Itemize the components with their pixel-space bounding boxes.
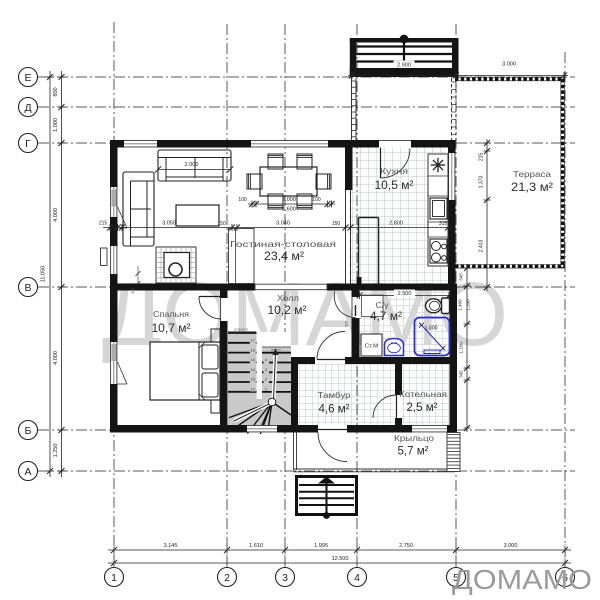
svg-text:17: 17 — [251, 338, 256, 343]
svg-text:1.250: 1.250 — [53, 444, 59, 458]
svg-text:1.000: 1.000 — [53, 118, 59, 132]
svg-text:3.040: 3.040 — [276, 221, 290, 227]
svg-text:215: 215 — [99, 221, 108, 227]
svg-text:2.750: 2.750 — [399, 543, 413, 549]
svg-text:5,7 м²: 5,7 м² — [398, 444, 429, 458]
svg-text:открыто: открыто — [234, 328, 248, 332]
svg-text:Б: Б — [25, 425, 32, 437]
svg-text:1.000: 1.000 — [425, 325, 438, 331]
svg-text:Г: Г — [25, 138, 31, 150]
svg-text:Д: Д — [24, 102, 31, 114]
svg-text:3.000: 3.000 — [504, 543, 518, 549]
svg-text:2.800: 2.800 — [389, 221, 403, 227]
svg-text:4.000: 4.000 — [53, 351, 59, 365]
svg-text:Терраса: Терраса — [513, 169, 551, 179]
svg-text:10,2 м²: 10,2 м² — [268, 303, 307, 317]
svg-text:150: 150 — [332, 221, 341, 227]
svg-text:800: 800 — [53, 87, 59, 96]
svg-text:12.500: 12.500 — [332, 556, 349, 562]
svg-text:вверх: вверх — [271, 348, 281, 352]
svg-text:ДОМАМО: ДОМАМО — [452, 564, 592, 595]
svg-text:4,7 м²: 4,7 м² — [370, 309, 402, 323]
svg-text:2.500: 2.500 — [398, 291, 412, 297]
svg-text:Кухня: Кухня — [380, 166, 408, 176]
svg-text:4,6 м²: 4,6 м² — [319, 402, 350, 416]
svg-text:В: В — [24, 282, 31, 294]
svg-text:3: 3 — [282, 572, 288, 584]
svg-text:850: 850 — [345, 321, 349, 327]
svg-text:Гостиная-столовая: Гостиная-столовая — [230, 239, 337, 249]
svg-text:А: А — [24, 466, 31, 478]
svg-text:Ст.М: Ст.М — [365, 344, 379, 350]
svg-text:2.000: 2.000 — [185, 162, 199, 168]
svg-text:14: 14 — [251, 367, 256, 372]
svg-text:345: 345 — [459, 273, 464, 281]
svg-text:16: 16 — [251, 347, 256, 352]
svg-text:4.000: 4.000 — [53, 208, 59, 222]
svg-text:215: 215 — [479, 153, 485, 162]
svg-text:10,7 м²: 10,7 м² — [152, 321, 191, 335]
svg-text:3.145: 3.145 — [164, 543, 178, 549]
svg-text:Спальня: Спальня — [153, 309, 189, 319]
svg-text:2: 2 — [224, 572, 230, 584]
svg-text:15: 15 — [251, 357, 256, 362]
svg-text:100: 100 — [312, 197, 321, 203]
svg-text:1.370: 1.370 — [479, 176, 485, 189]
svg-text:Крыльцо: Крыльцо — [394, 433, 434, 443]
svg-text:3.050: 3.050 — [162, 221, 176, 227]
svg-text:21,3 м²: 21,3 м² — [511, 180, 553, 194]
svg-text:11.050: 11.050 — [41, 266, 47, 282]
svg-text:10,5 м²: 10,5 м² — [375, 178, 414, 192]
svg-text:1.610: 1.610 — [249, 543, 263, 549]
svg-text:150: 150 — [217, 221, 226, 227]
svg-text:4: 4 — [354, 572, 360, 584]
svg-text:3.000: 3.000 — [502, 62, 516, 68]
svg-text:2.403: 2.403 — [479, 240, 485, 253]
svg-text:2.000: 2.000 — [282, 197, 296, 203]
svg-text:1.150: 1.150 — [459, 342, 464, 354]
svg-text:Тамбур: Тамбур — [318, 390, 351, 400]
svg-text:345: 345 — [459, 370, 464, 378]
svg-text:100: 100 — [238, 197, 247, 203]
svg-text:Котельная: Котельная — [399, 389, 447, 399]
svg-text:1: 1 — [111, 572, 117, 584]
svg-text:2,5 м²: 2,5 м² — [407, 400, 438, 414]
svg-text:23,4 м²: 23,4 м² — [264, 249, 304, 263]
svg-text:Холл: Холл — [277, 293, 299, 303]
svg-text:2.600: 2.600 — [282, 207, 296, 213]
svg-text:2.900: 2.900 — [397, 63, 411, 69]
svg-text:300: 300 — [131, 288, 135, 294]
svg-text:1.400: 1.400 — [458, 299, 463, 311]
svg-text:12: 12 — [251, 387, 256, 392]
svg-text:13: 13 — [251, 377, 256, 382]
svg-text:315: 315 — [439, 221, 448, 227]
svg-text:Е: Е — [24, 72, 31, 84]
svg-text:1.200: 1.200 — [466, 299, 471, 311]
svg-text:1.995: 1.995 — [314, 543, 328, 549]
